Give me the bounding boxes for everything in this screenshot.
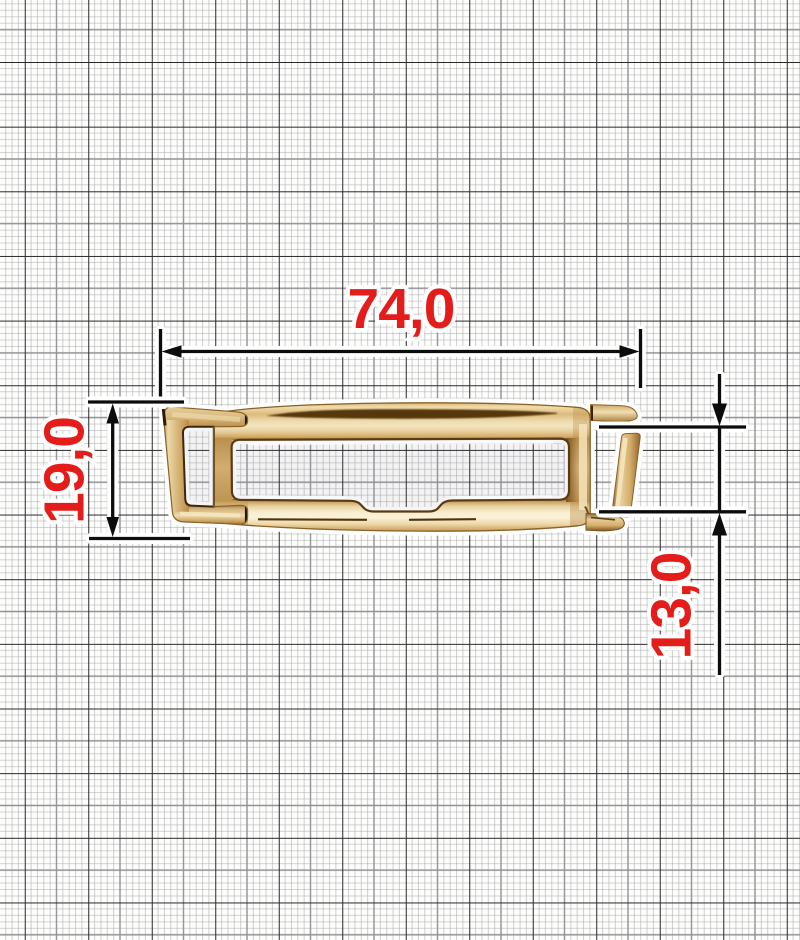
svg-text:74,0: 74,0 bbox=[348, 277, 455, 341]
svg-text:13,0: 13,0 bbox=[640, 553, 704, 660]
svg-text:19,0: 19,0 bbox=[33, 417, 97, 524]
